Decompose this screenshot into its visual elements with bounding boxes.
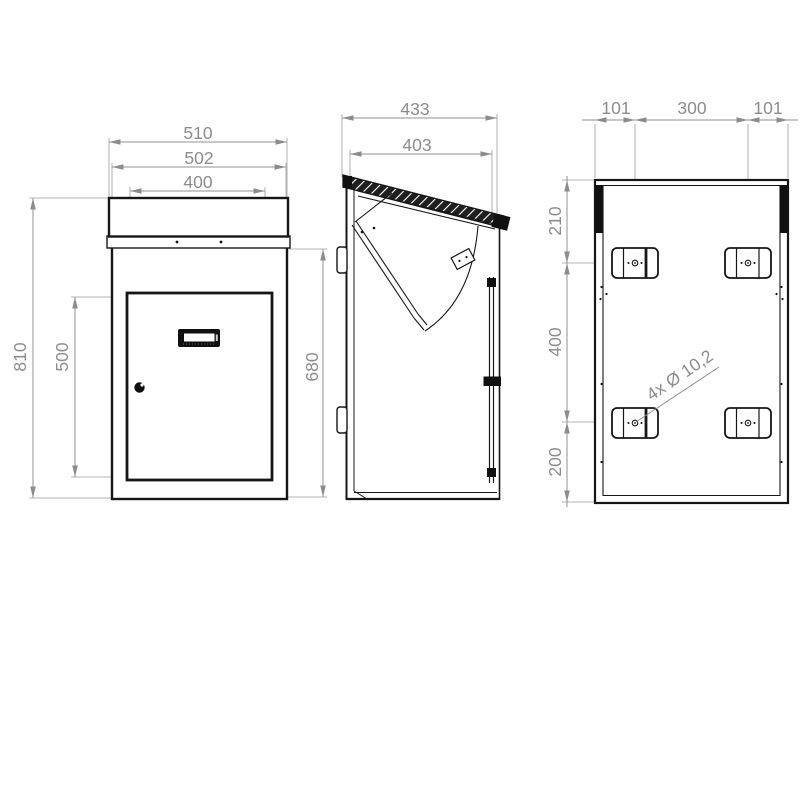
dim-back-holes-to-bottom: 200 bbox=[545, 447, 565, 476]
front-strip-screw-right bbox=[220, 241, 223, 244]
dim-side-total-depth: 433 bbox=[400, 99, 429, 119]
dim-back-hole-spacing: 300 bbox=[677, 98, 706, 118]
dim-front-body-height: 680 bbox=[302, 352, 322, 381]
bracket-top-right bbox=[725, 248, 771, 278]
side-door-bottom-pin bbox=[487, 468, 496, 477]
bracket-top-left bbox=[612, 248, 658, 278]
dim-front-body-width: 502 bbox=[184, 148, 213, 168]
dim-front-slot-width: 400 bbox=[183, 172, 212, 192]
front-lock-keyhole bbox=[134, 382, 144, 392]
dim-back-top-to-holes: 210 bbox=[545, 206, 565, 235]
front-door bbox=[127, 293, 272, 480]
side-pivot-dot-1 bbox=[361, 231, 364, 234]
front-handle-plate bbox=[178, 329, 220, 347]
dim-back-hole-offset-right: 101 bbox=[753, 98, 782, 118]
back-side-flange-right bbox=[780, 185, 788, 233]
drawing-sheet: 510 502 400 810 500 680 bbox=[0, 0, 800, 800]
front-lid-strip bbox=[107, 236, 290, 248]
side-pivot-dot-2 bbox=[373, 227, 376, 230]
dim-back-hole-offset-left: 101 bbox=[601, 98, 630, 118]
front-lid bbox=[109, 198, 288, 237]
front-strip-screw-left bbox=[176, 241, 179, 244]
bracket-bottom-right bbox=[725, 408, 771, 438]
dim-front-total-width: 510 bbox=[183, 123, 212, 143]
technical-drawing: 510 502 400 810 500 680 bbox=[0, 0, 800, 800]
dim-front-total-height: 810 bbox=[10, 342, 30, 371]
side-lid-left-cap bbox=[343, 176, 352, 188]
back-side-flange-left bbox=[595, 185, 603, 233]
side-door-latch bbox=[484, 377, 502, 387]
side-door-top-pin bbox=[487, 278, 496, 287]
side-hinge-top bbox=[337, 247, 347, 273]
back-panel-outline bbox=[595, 180, 788, 503]
dim-back-holes-vertical-spacing: 400 bbox=[545, 327, 565, 356]
side-hinge-bottom bbox=[337, 407, 347, 433]
dim-front-door-height: 500 bbox=[52, 342, 72, 371]
dim-side-body-depth: 403 bbox=[402, 135, 431, 155]
